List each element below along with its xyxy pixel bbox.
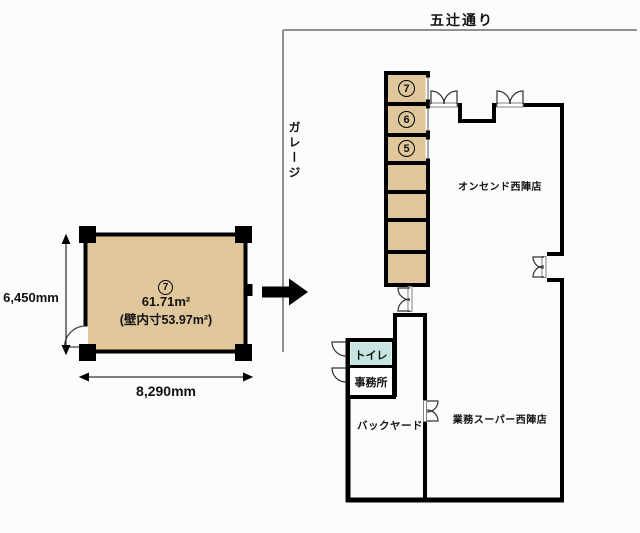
floor-plan-page: 五辻通り ガレージ 7 61.71m² (壁内寸53.97m²) 6,450mm… [0,0,640,533]
stack-unit-5-badge: 5 [398,140,415,157]
height-dimension-line [62,235,69,354]
street-name-label: 五辻通り [427,10,497,30]
top-wall-notch [456,105,498,121]
stack-cell [386,163,428,192]
stack-unit-7-badge: 7 [398,80,415,97]
toilet-door-arc-icon [332,342,346,356]
stack-cell [386,192,428,220]
right-arrow-icon [262,279,308,306]
entrance-door-arc-icon [444,91,457,104]
garage-label: ガレージ [286,121,303,181]
gyomu-super-store-label: 業務スーパー西陣店 [445,411,555,426]
wall-column-tick [244,284,253,296]
unit-stack [386,73,428,285]
stack-cell-openings [426,78,431,159]
width-dimension-label: 8,290mm [126,383,206,399]
detail-unit-number-badge: 7 [158,280,173,295]
height-dimension-label: 6,450mm [0,290,62,305]
pillar [235,226,252,243]
detail-unit-area-label: 61.71m² [106,294,226,309]
width-dimension-line [80,373,252,380]
building-walls [346,105,564,502]
onsendo-store-label: オンセンド西陣店 [450,178,550,193]
backyard-label: バックヤード [352,418,428,433]
east-wall-lower [547,280,562,498]
entrance-door-arc-icon [497,91,510,104]
stack-unit-6-badge: 6 [398,111,415,128]
pillar [235,344,252,361]
toilet-label: トイレ [350,347,392,363]
detail-unit-inner-area-label: (壁内寸53.97m²) [96,309,236,328]
office-label: 事務所 [348,374,394,390]
pillar [79,226,96,243]
stack-cell [386,252,428,285]
site-plan-drawing [332,73,564,502]
pillar [79,344,96,361]
stack-cell [386,220,428,252]
office-door-arc-icon [332,368,346,382]
entrance-door-arc-icon [431,91,444,104]
detail-door-gap [81,327,88,347]
floor-plan-linework [0,0,640,533]
entrance-door-arc-icon [510,91,523,104]
